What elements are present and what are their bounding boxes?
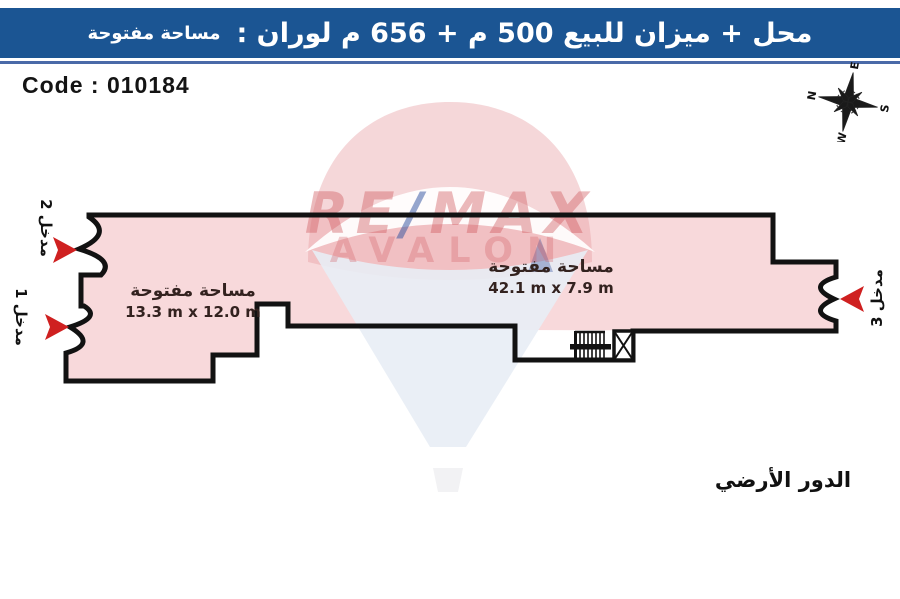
room-label-open-area-2: مساحة مفتوحة 42.1 m x 7.9 m <box>466 257 636 297</box>
floor-plan-page: محل + ميزان للبيع 500 م + 656 م لوران : … <box>0 0 900 599</box>
entrance-3-label: مدخل 3 <box>868 269 886 327</box>
floor-level-label: الدور الأرضي <box>698 468 868 492</box>
room-1-name: مساحة مفتوحة <box>108 281 278 301</box>
room-2-name: مساحة مفتوحة <box>466 257 636 277</box>
entrance-2-label: مدخل 2 <box>37 199 55 257</box>
room-2-dimensions: 42.1 m x 7.9 m <box>466 279 636 297</box>
entrance-3-arrow-icon <box>840 286 864 312</box>
room-1-dimensions: 13.3 m x 12.0 m <box>108 303 278 321</box>
entrance-1-label: مدخل 1 <box>12 288 30 346</box>
entrance-2-arrow-icon <box>53 237 77 263</box>
entrance-1-arrow-icon <box>45 314 69 340</box>
room-label-open-area-1: مساحة مفتوحة 13.3 m x 12.0 m <box>108 281 278 321</box>
staircase-icon <box>570 331 611 359</box>
elevator-icon <box>614 331 633 360</box>
